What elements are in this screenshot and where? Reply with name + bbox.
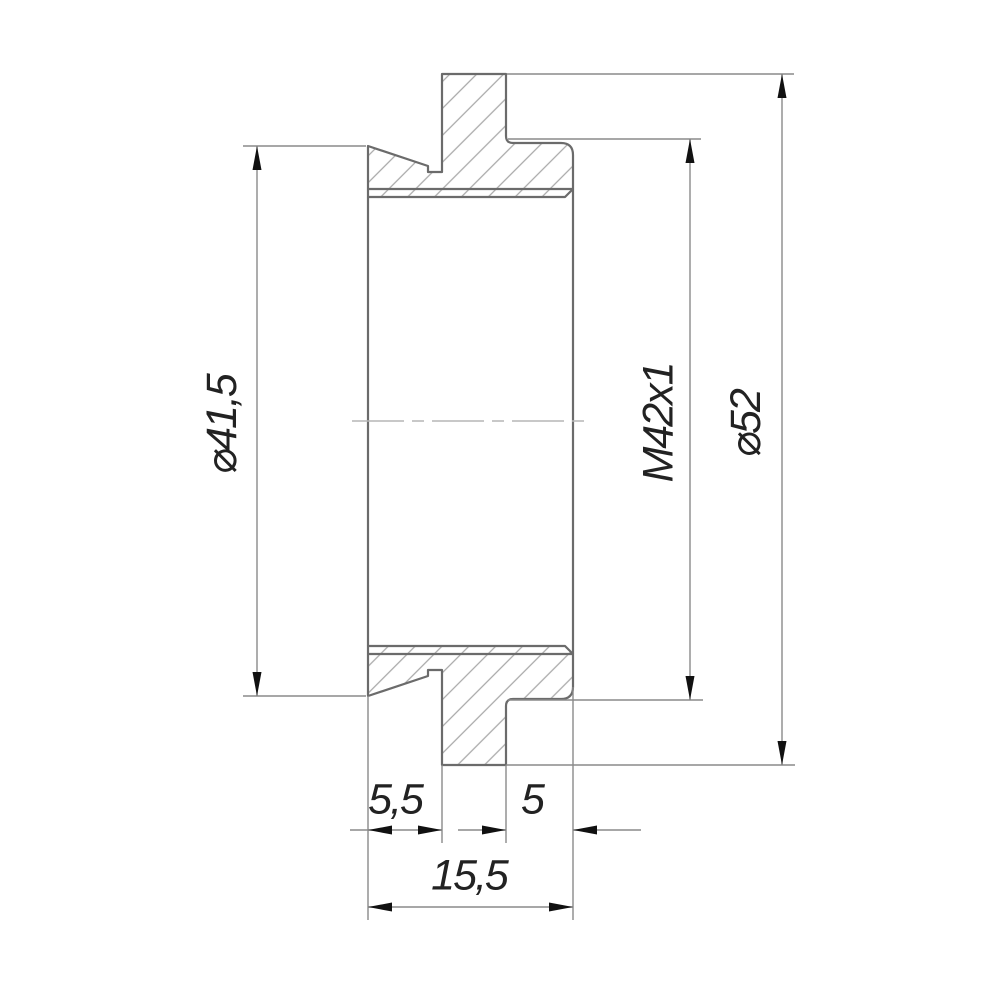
arrow-5-left [482,826,506,835]
extension-lines [243,74,795,920]
arrow-155-right [549,903,573,912]
dimension-lines [257,74,782,907]
dim-label-left-shoulder: 5,5 [368,776,422,825]
lower-wall-section [368,646,573,765]
drawing-canvas: ⌀41,5 M42x1 ⌀52 5,5 5 15,5 [0,0,1000,1000]
arrow-m42-down [686,676,695,700]
dim-label-inner-diameter: ⌀41,5 [197,375,247,475]
arrow-55-left [368,826,392,835]
arrow-m42-up [686,139,695,163]
dim-label-thread-spec: M42x1 [635,363,684,482]
dim-label-outer-diameter: ⌀52 [721,390,771,458]
dim-label-overall-length: 15,5 [431,852,507,901]
arrow-d52-up [778,74,787,98]
upper-wall-section [368,74,573,197]
dimension-arrows [253,74,787,912]
arrow-155-left [368,903,392,912]
section-drawing [0,0,1000,1000]
arrow-d52-down [778,741,787,765]
arrow-d415-down [253,672,262,696]
part-section [352,74,590,765]
arrow-55-right [418,826,442,835]
arrow-5-right [573,826,597,835]
arrow-d415-up [253,146,262,170]
dim-label-flange-step: 5 [521,776,543,825]
